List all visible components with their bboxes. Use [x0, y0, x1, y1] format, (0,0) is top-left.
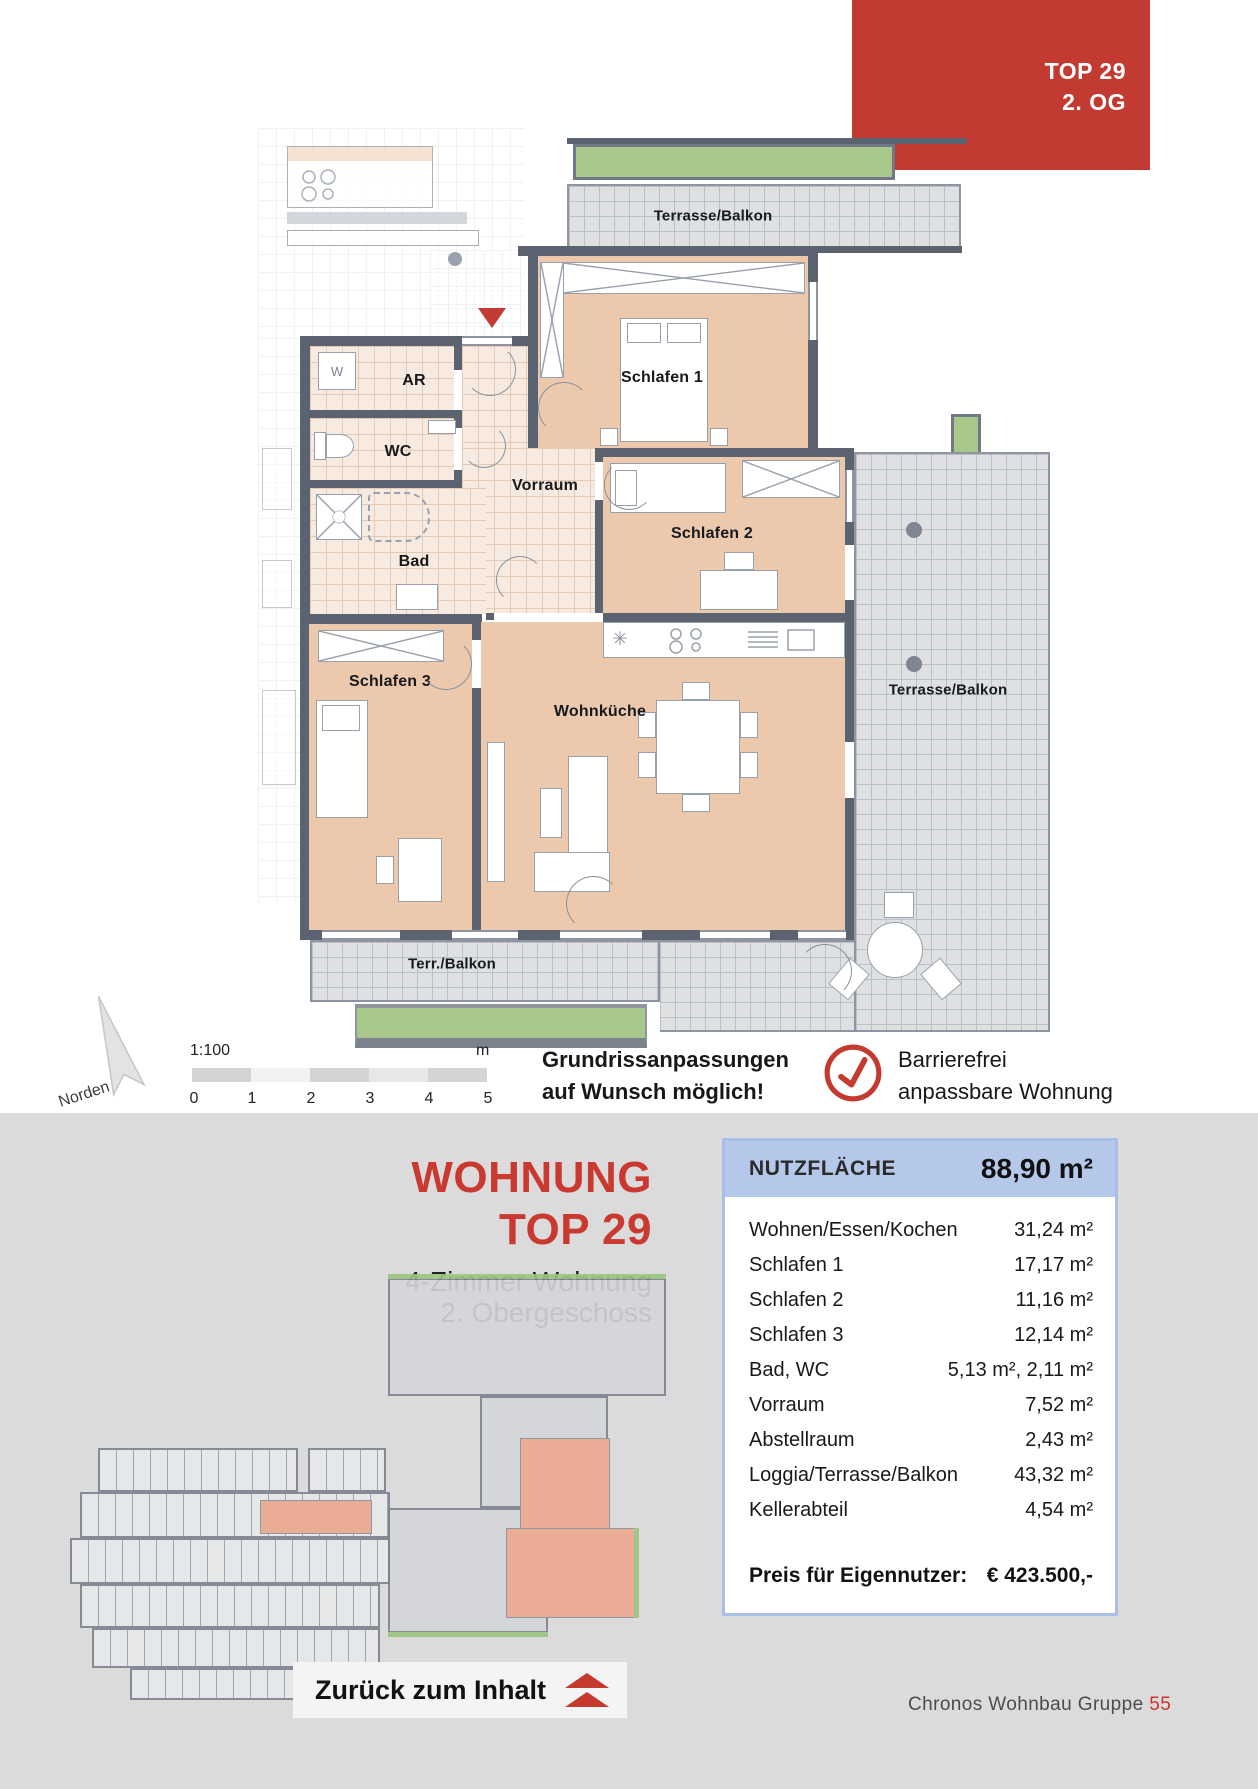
wall [306, 410, 462, 418]
wall [512, 336, 528, 346]
room-label-wohnkueche: Wohnküche [554, 703, 646, 721]
chair-icon [376, 856, 394, 884]
row-value: 43,32 m² [1014, 1458, 1093, 1493]
window [808, 282, 818, 340]
pillow [322, 705, 360, 731]
accessible-note-line2: anpassbare Wohnung [898, 1076, 1113, 1108]
wardrobe-icon [540, 262, 564, 378]
neighbour-fixture [262, 690, 296, 785]
side-table-icon [540, 788, 562, 838]
sofa-icon [568, 756, 608, 860]
accessible-note: Barrierefrei anpassbare Wohnung [898, 1044, 1113, 1108]
scale-segment [310, 1068, 369, 1082]
table-row: Vorraum 7,52 m² [749, 1388, 1093, 1423]
row-label: Loggia/Terrasse/Balkon [749, 1458, 958, 1493]
cabinet-icon [487, 742, 505, 882]
neighbour-floor [430, 250, 522, 338]
keyplan-highlight-unit [520, 1438, 610, 1532]
row-label: Schlafen 3 [749, 1318, 844, 1353]
page-number: 55 [1149, 1694, 1171, 1715]
scale-ratio: 1:100 [190, 1042, 230, 1060]
bed-icon [316, 700, 368, 818]
north-label: Norden [57, 1078, 112, 1111]
room-label-schlafen1: Schlafen 1 [621, 369, 703, 387]
door-arc [538, 382, 590, 434]
table-row: Schlafen 2 11,16 m² [749, 1283, 1093, 1318]
room-label-wc: WC [384, 443, 411, 461]
section-floor [98, 1448, 298, 1492]
back-to-contents-button[interactable]: Zurück zum Inhalt [293, 1662, 627, 1718]
row-value: 2,43 m² [1025, 1423, 1093, 1458]
footer: Chronos Wohnbau Gruppe 55 [908, 1694, 1171, 1716]
keyplan-highlight-unit [506, 1528, 638, 1618]
door-opening [845, 742, 854, 798]
pillow [627, 323, 661, 343]
snowflake-icon: ✳ [612, 628, 628, 651]
shower-icon [316, 494, 362, 540]
wall [603, 613, 854, 622]
table-row: Abstellraum 2,43 m² [749, 1423, 1093, 1458]
room-label-ar: AR [402, 372, 426, 390]
wall [808, 246, 818, 458]
washbasin-icon [396, 584, 438, 610]
brochure-page: TOP 29 2. OG Terrasse/Balkon [0, 0, 1258, 1789]
wall [300, 336, 462, 346]
row-value: 31,24 m² [1014, 1213, 1093, 1248]
planter-top [573, 144, 895, 180]
room-label-schlafen3: Schlafen 3 [349, 673, 431, 691]
chair-icon [682, 794, 710, 812]
row-value: 5,13 m², 2,11 m² [948, 1353, 1093, 1388]
room-label-vorraum: Vorraum [512, 477, 578, 495]
chair-icon [682, 682, 710, 700]
scale-tick: 4 [425, 1090, 434, 1108]
door-arc [566, 876, 621, 931]
door-opening [845, 545, 854, 600]
customization-note-line1: Grundrissanpassungen [542, 1044, 789, 1076]
row-value: 7,52 m² [1025, 1388, 1093, 1423]
area-table: NUTZFLÄCHE 88,90 m² Wohnen/Essen/Kochen … [722, 1138, 1118, 1616]
keyplan-planter [388, 1632, 548, 1637]
scale-segment [192, 1068, 251, 1082]
table-row: Bad, WC 5,13 m², 2,11 m² [749, 1353, 1093, 1388]
door-arc [462, 424, 506, 468]
scale-unit: m [476, 1042, 489, 1060]
planter-right [951, 414, 981, 456]
price-row: Preis für Eigennutzer: € 423.500,- [749, 1558, 1093, 1593]
row-label: Schlafen 1 [749, 1248, 844, 1283]
neighbour-ledge [287, 230, 479, 246]
wall [518, 246, 818, 256]
column-dot [906, 656, 922, 672]
floor-plan: Terrasse/Balkon [0, 0, 1258, 1060]
room-label-terrace-right: Terrasse/Balkon [889, 682, 1008, 699]
terrace-door [560, 930, 642, 940]
column-dot [906, 522, 922, 538]
table-row: Schlafen 1 17,17 m² [749, 1248, 1093, 1283]
kitchen-counter: ✳ [603, 622, 845, 658]
desk-icon [398, 838, 442, 902]
scale-segment [428, 1068, 487, 1082]
area-table-body: Wohnen/Essen/Kochen 31,24 m² Schlafen 1 … [725, 1197, 1115, 1613]
scale-tick: 5 [484, 1090, 493, 1108]
chair-icon [638, 752, 656, 778]
table-row: Schlafen 3 12,14 m² [749, 1318, 1093, 1353]
wardrobe-icon [562, 262, 805, 294]
neighbour-shelf [287, 212, 467, 224]
key-plan-thumbnail [388, 1278, 666, 1646]
wall [472, 688, 481, 940]
scale-tick: 3 [366, 1090, 375, 1108]
scale-segment [251, 1068, 310, 1082]
column-dot [448, 252, 462, 266]
window [845, 470, 854, 522]
scale-bar [192, 1068, 487, 1082]
row-label: Kellerabteil [749, 1493, 848, 1528]
door-arc [798, 944, 852, 998]
hob-icon [662, 625, 714, 655]
window [322, 930, 400, 940]
toilet-icon [314, 432, 326, 460]
wall [812, 246, 962, 253]
row-label: Schlafen 2 [749, 1283, 844, 1318]
wall [595, 500, 603, 613]
neighbour-counter-top [288, 147, 432, 161]
scale-segment [369, 1068, 428, 1082]
window [700, 930, 770, 940]
wall [300, 614, 482, 624]
row-value: 4,54 m² [1025, 1493, 1093, 1528]
dining-table-icon [656, 700, 740, 794]
back-button-label: Zurück zum Inhalt [315, 1675, 546, 1706]
accessible-note-line1: Barrierefrei [898, 1044, 1113, 1076]
round-table-icon [867, 922, 923, 978]
entrance-arrow-icon [478, 308, 506, 328]
wall [454, 470, 462, 488]
room-label-terrace-bottom: Terr./Balkon [408, 956, 496, 973]
area-table-header: NUTZFLÄCHE 88,90 m² [725, 1141, 1115, 1197]
customization-note-line2: auf Wunsch möglich! [542, 1076, 789, 1108]
keyplan-planter [388, 1274, 666, 1279]
row-label: Vorraum [749, 1388, 825, 1423]
neighbour-kitchen-counter [287, 146, 433, 208]
row-label: Bad, WC [749, 1353, 829, 1388]
row-value: 12,14 m² [1014, 1318, 1093, 1353]
chair-icon [724, 552, 754, 570]
door-arc [464, 344, 516, 396]
wardrobe-icon [742, 460, 840, 498]
chair-icon [740, 712, 758, 738]
row-value: 11,16 m² [1016, 1283, 1093, 1318]
wall [306, 480, 462, 488]
planter-bottom [355, 1004, 647, 1048]
area-table-title: NUTZFLÄCHE [749, 1157, 896, 1181]
row-value: 17,17 m² [1014, 1248, 1093, 1283]
chair-icon [884, 892, 914, 918]
pillow [667, 323, 701, 343]
keyplan-planter [634, 1528, 639, 1618]
washing-machine-icon: W [318, 352, 356, 390]
door-arc [496, 556, 544, 604]
scale-tick: 2 [307, 1090, 316, 1108]
area-table-total: 88,90 m² [981, 1153, 1093, 1185]
table-row: Kellerabteil 4,54 m² [749, 1493, 1093, 1528]
window [452, 930, 518, 940]
neighbour-fixture [262, 448, 292, 510]
nightstand [710, 428, 728, 446]
terrace-door [798, 930, 846, 940]
oven-sink-icon [744, 627, 824, 653]
chair-icon [740, 752, 758, 778]
wall [595, 457, 603, 462]
sink-icon [428, 420, 456, 434]
neighbour-floor [258, 338, 306, 903]
section-floor [308, 1448, 386, 1492]
bathtub-icon [368, 492, 430, 542]
room-label-bad: Bad [399, 553, 430, 571]
door-arc [604, 460, 654, 510]
title-line1: WOHNUNG [405, 1152, 652, 1204]
wall [472, 614, 481, 640]
neighbour-fixture [262, 560, 292, 608]
section-floor [80, 1584, 380, 1628]
row-label: Wohnen/Essen/Kochen [749, 1213, 958, 1248]
check-icon [818, 1038, 888, 1108]
scale-tick: 0 [190, 1090, 199, 1108]
table-row: Wohnen/Essen/Kochen 31,24 m² [749, 1213, 1093, 1248]
hob-icon [298, 167, 342, 203]
section-floor [70, 1538, 390, 1584]
door-arc [420, 638, 472, 690]
row-label: Abstellraum [749, 1423, 855, 1458]
up-chevrons-icon [565, 1673, 609, 1707]
desk-icon [700, 570, 778, 610]
scale-tick: 1 [248, 1090, 257, 1108]
wall [454, 344, 462, 370]
wall [528, 254, 538, 448]
room-label-terrace-top: Terrasse/Balkon [654, 208, 773, 225]
table-row: Loggia/Terrasse/Balkon 43,32 m² [749, 1458, 1093, 1493]
keyplan-wing [388, 1278, 666, 1396]
nightstand [600, 428, 618, 446]
toilet-icon [326, 434, 354, 458]
price-value: € 423.500,- [987, 1558, 1093, 1593]
room-label-schlafen2: Schlafen 2 [671, 525, 753, 543]
price-label: Preis für Eigennutzer: [749, 1558, 967, 1593]
title-line2: TOP 29 [405, 1204, 652, 1256]
footer-brand: Chronos Wohnbau Gruppe [908, 1694, 1144, 1715]
section-highlight-unit [260, 1500, 372, 1534]
customization-note: Grundrissanpassungen auf Wunsch möglich! [542, 1044, 789, 1108]
